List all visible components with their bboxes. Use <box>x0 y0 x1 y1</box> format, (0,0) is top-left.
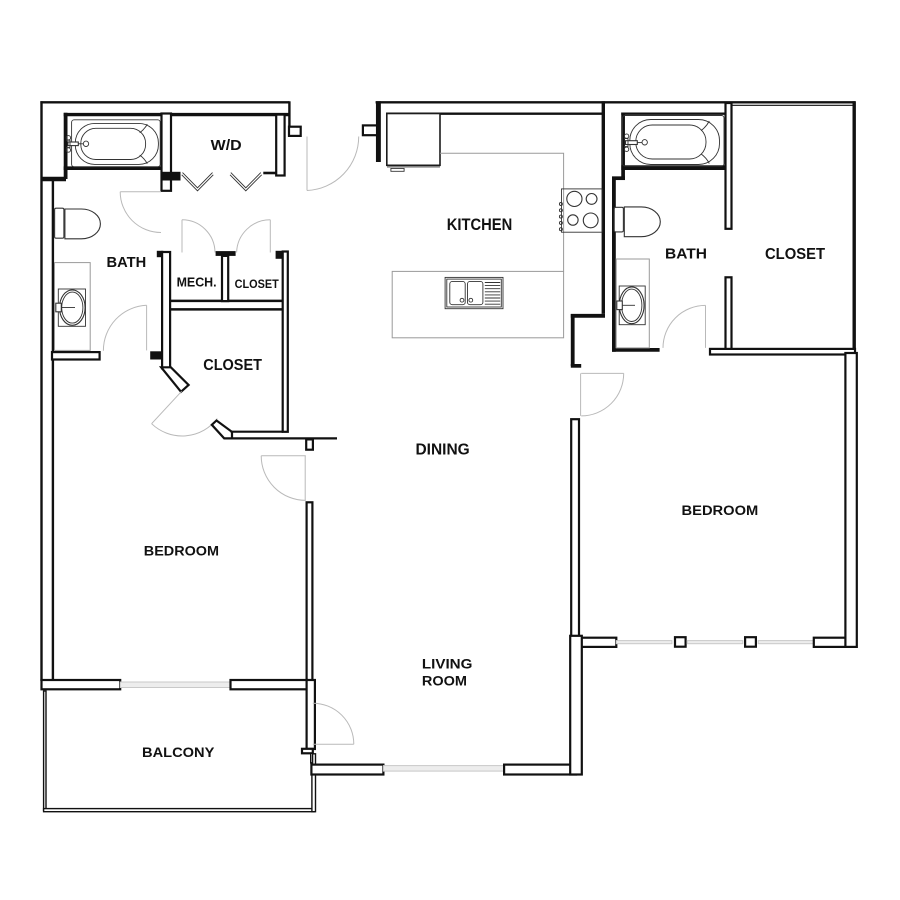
svg-text:ROOM: ROOM <box>422 674 467 690</box>
svg-text:BATH: BATH <box>665 246 707 263</box>
svg-text:KITCHEN: KITCHEN <box>447 216 513 234</box>
svg-text:DINING: DINING <box>416 442 470 459</box>
svg-text:BEDROOM: BEDROOM <box>682 503 759 519</box>
svg-text:CLOSET: CLOSET <box>235 277 280 291</box>
svg-text:CLOSET: CLOSET <box>765 246 825 263</box>
svg-text:BALCONY: BALCONY <box>142 745 215 761</box>
svg-text:BEDROOM: BEDROOM <box>144 543 219 559</box>
svg-text:BATH: BATH <box>107 254 147 271</box>
svg-text:MECH.: MECH. <box>177 276 217 290</box>
svg-text:LIVING: LIVING <box>422 656 473 672</box>
svg-text:W/D: W/D <box>211 137 242 154</box>
svg-text:CLOSET: CLOSET <box>203 357 262 374</box>
